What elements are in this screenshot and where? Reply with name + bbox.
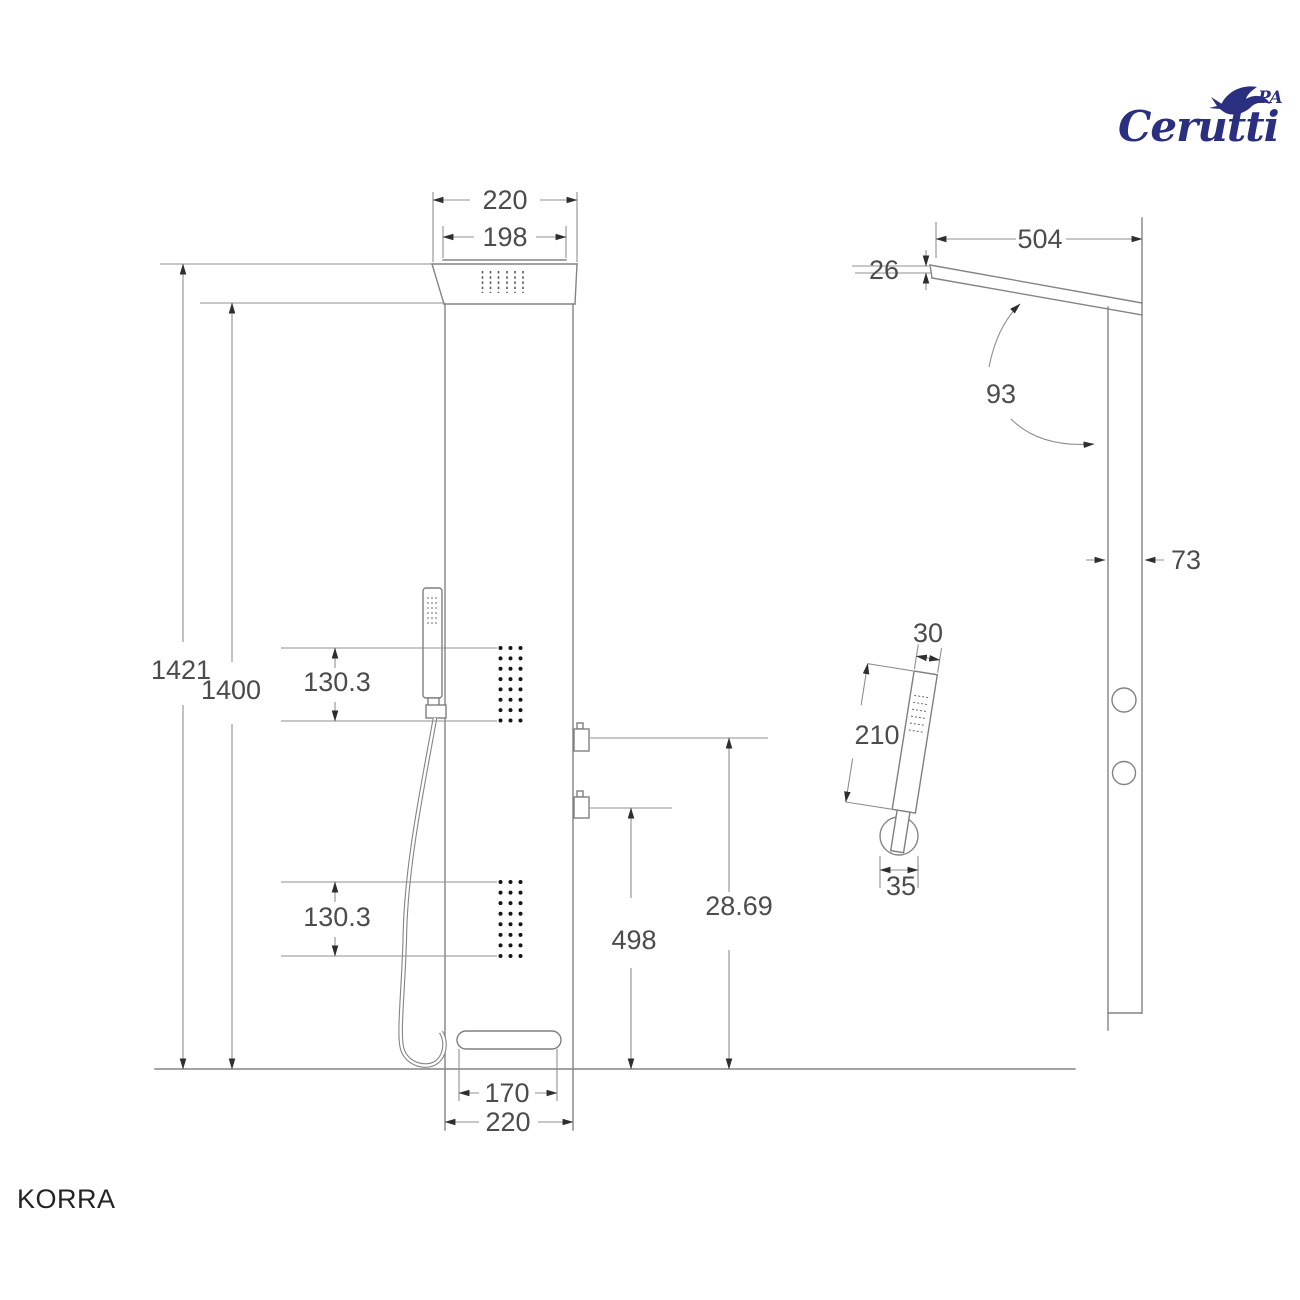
hand-shower-neck	[891, 810, 910, 853]
dim-head-widths: 220 198	[433, 185, 577, 262]
body-jet-nozzle	[519, 954, 523, 958]
body-jet-nozzle	[499, 708, 503, 712]
body-jet-nozzle	[519, 943, 523, 947]
body-jet-nozzle	[499, 677, 503, 681]
body-jet-nozzle	[519, 880, 523, 884]
lower-body-jets	[499, 880, 523, 958]
body-jet-nozzle	[499, 912, 503, 916]
body-jet-nozzle	[519, 891, 523, 895]
hand-shower-front	[423, 588, 446, 718]
body-jet-nozzle	[509, 880, 513, 884]
body-jet-nozzle	[519, 901, 523, 905]
body-jet-nozzle	[499, 922, 503, 926]
dim-arm-projection: 504	[1017, 224, 1062, 254]
panel-column	[445, 304, 573, 1130]
body-jet-nozzle	[509, 954, 513, 958]
brand-logo: PA Cerutti	[1112, 78, 1297, 168]
side-head-arm	[930, 265, 1142, 315]
body-jet-nozzle	[519, 698, 523, 702]
dim-panel-depth-group: 73	[1086, 545, 1201, 575]
dim-arm-angle-group: 93	[986, 304, 1094, 444]
body-jet-nozzle	[499, 891, 503, 895]
dim-arm-projection-group: 504	[936, 222, 1142, 258]
upper-body-jets	[499, 646, 523, 723]
hand-shower-holder	[426, 705, 446, 718]
body-jet-nozzle	[499, 954, 503, 958]
body-jet-nozzle	[499, 901, 503, 905]
side-knob-lower	[1113, 762, 1136, 785]
body-jet-nozzle	[519, 646, 523, 650]
dim-lower-jet-field: 130.3	[281, 882, 497, 956]
body-jet-nozzle	[509, 912, 513, 916]
body-jet-nozzle	[519, 933, 523, 937]
knob-upper	[574, 723, 589, 751]
body-jet-nozzle	[499, 719, 503, 723]
body-jet-nozzle	[519, 687, 523, 691]
body-jet-nozzle	[499, 880, 503, 884]
body-jet-nozzle	[509, 891, 513, 895]
dim-bracket-width-group: 35	[880, 856, 918, 901]
dim-upper-jet-field-height: 130.3	[303, 667, 371, 697]
body-jet-nozzle	[509, 708, 513, 712]
body-jet-nozzle	[509, 687, 513, 691]
body-jet-nozzle	[499, 698, 503, 702]
body-jet-nozzle	[499, 656, 503, 660]
dim-knob-heights: 28.69 498	[590, 738, 773, 1069]
body-jet-nozzle	[509, 677, 513, 681]
body-jet-nozzle	[519, 708, 523, 712]
dim-head-inner-width: 198	[482, 222, 527, 252]
dim-bottom-widths: 170 220	[445, 1049, 573, 1137]
dim-upper-handle-offset: 28.69	[705, 891, 773, 921]
side-knob-upper	[1112, 688, 1136, 712]
dim-panel-depth: 73	[1171, 545, 1201, 575]
body-jet-nozzle	[509, 719, 513, 723]
dim-panel-height: 1400	[201, 675, 261, 705]
body-jet-nozzle	[499, 933, 503, 937]
knob-lower	[574, 791, 589, 818]
brand-name-text: Cerutti	[1118, 102, 1279, 151]
body-jet-nozzle	[519, 656, 523, 660]
dim-arm-thickness-group: 26	[852, 250, 931, 290]
body-jet-nozzle	[509, 901, 513, 905]
body-jet-nozzle	[509, 646, 513, 650]
body-jet-nozzle	[519, 922, 523, 926]
body-jet-nozzle	[499, 687, 503, 691]
dim-arm-angle: 93	[986, 379, 1016, 409]
body-jet-nozzle	[519, 719, 523, 723]
dim-lower-jet-field-height: 130.3	[303, 902, 371, 932]
head-nozzle-rows	[483, 271, 524, 293]
dim-heights: 1421 1400	[151, 264, 445, 1069]
technical-drawing-page: 220 198 1421 1400	[0, 0, 1300, 1300]
side-view: 504 26 93 73	[852, 218, 1201, 1030]
dim-spout-width: 170	[484, 1078, 529, 1108]
dim-arm-thickness: 26	[869, 255, 899, 285]
hand-shower-detail: 30 210 35	[839, 618, 943, 901]
body-jet-nozzle	[509, 933, 513, 937]
dim-upper-jet-field: 130.3	[281, 648, 497, 721]
body-jet-nozzle	[499, 943, 503, 947]
body-jet-nozzle	[509, 698, 513, 702]
body-jet-nozzle	[499, 646, 503, 650]
body-jet-nozzle	[519, 912, 523, 916]
dim-head-outer-width: 220	[482, 185, 527, 215]
body-jet-nozzle	[519, 677, 523, 681]
dim-lower-handle-offset: 498	[611, 925, 656, 955]
dim-hand-shower-length: 210	[854, 720, 899, 750]
head-shower	[432, 260, 577, 304]
dim-bracket-width: 35	[886, 871, 916, 901]
shower-panel-drawing: 220 198 1421 1400	[0, 0, 1300, 1300]
model-name: KORRA	[17, 1184, 116, 1215]
body-jet-nozzle	[519, 667, 523, 671]
front-view: 220 198 1421 1400	[151, 185, 1075, 1137]
side-panel-body	[1108, 218, 1142, 1030]
shower-hose	[401, 718, 445, 1066]
dim-panel-width: 220	[485, 1107, 530, 1137]
tub-spout	[457, 1031, 561, 1049]
body-jet-nozzle	[509, 656, 513, 660]
body-jet-nozzle	[509, 922, 513, 926]
dim-hand-shower-width: 30	[913, 618, 943, 648]
body-jet-nozzle	[499, 667, 503, 671]
body-jet-nozzle	[509, 943, 513, 947]
body-jet-nozzle	[509, 667, 513, 671]
